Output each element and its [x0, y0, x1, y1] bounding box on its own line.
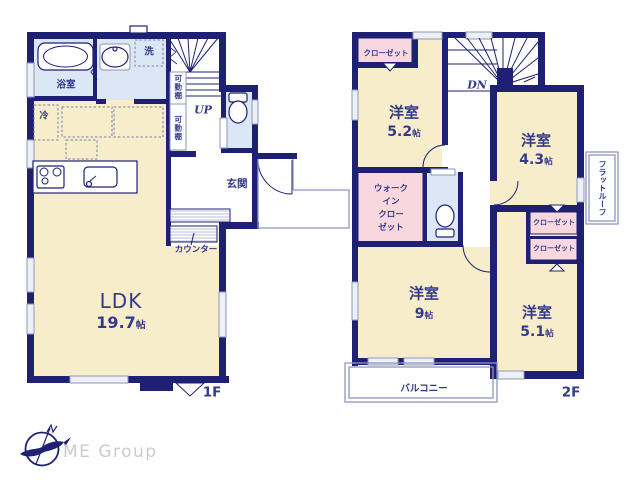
brand-text: ME Group [63, 442, 158, 462]
label-bed9-size: 9帖 [415, 307, 433, 321]
label-closet-a: クローゼット [533, 220, 575, 227]
label-bed52-name: 洋室 [389, 106, 419, 121]
label-fridge: 冷 [39, 113, 48, 122]
label-shelf-2: 可動棚 [174, 115, 182, 141]
label-floor-1f: 1F [203, 386, 222, 400]
vent-bump [130, 26, 147, 33]
label-wic-line2: イン [382, 198, 399, 207]
toilet-1f-door [220, 118, 227, 148]
counter-strip-1 [170, 209, 230, 222]
label-laundry: 洗 [144, 47, 154, 57]
label-closet-nw: クローゼット [364, 49, 409, 57]
toilet-bowl-1f [229, 101, 247, 123]
toilet-bowl-2f [436, 205, 454, 227]
toilet-tank-2f [436, 229, 454, 237]
label-bed52-size: 5.2帖 [387, 125, 420, 139]
label-bathroom: 浴室 [56, 80, 75, 90]
label-bed51-size: 5.1帖 [520, 325, 553, 339]
porch-outline [258, 159, 349, 228]
label-floor-2f: 2F [562, 386, 581, 400]
label-bed43-size: 4.3帖 [519, 153, 552, 167]
label-closet-b: クローゼット [533, 246, 575, 253]
entrance-step-marker [176, 383, 204, 396]
label-wic-line3: クロー [378, 211, 404, 220]
label-wic-line4: ゼット [378, 224, 404, 233]
label-bed43-name: 洋室 [521, 134, 551, 149]
floor-plan-drawing [0, 0, 640, 480]
label-shelf-1: 可動棚 [174, 74, 182, 100]
faucet [87, 182, 92, 187]
label-bed9-name: 洋室 [409, 287, 439, 302]
label-ldk-name: LDK [100, 291, 143, 311]
label-counter: カウンター [175, 246, 218, 255]
label-stairs-dn: DN [467, 80, 487, 91]
label-flat-roof: フラットルーフ [598, 160, 606, 216]
label-wic-line1: ウォーク [374, 185, 408, 194]
label-entrance: 玄関 [227, 179, 248, 190]
entrance-door-arc [258, 160, 292, 194]
label-balcony: バルコニー [400, 384, 447, 394]
label-stairs-up: UP [194, 105, 212, 116]
toilet-2f-door [431, 169, 455, 175]
label-ldk-size: 19.7帖 [96, 315, 145, 331]
floor-plan-page: 浴室 洗 冷 可動棚 可動棚 UP 玄関 カウンター LDK 19.7帖 1F … [0, 0, 640, 480]
bathtub [38, 43, 93, 70]
label-bed51-name: 洋室 [522, 306, 552, 321]
